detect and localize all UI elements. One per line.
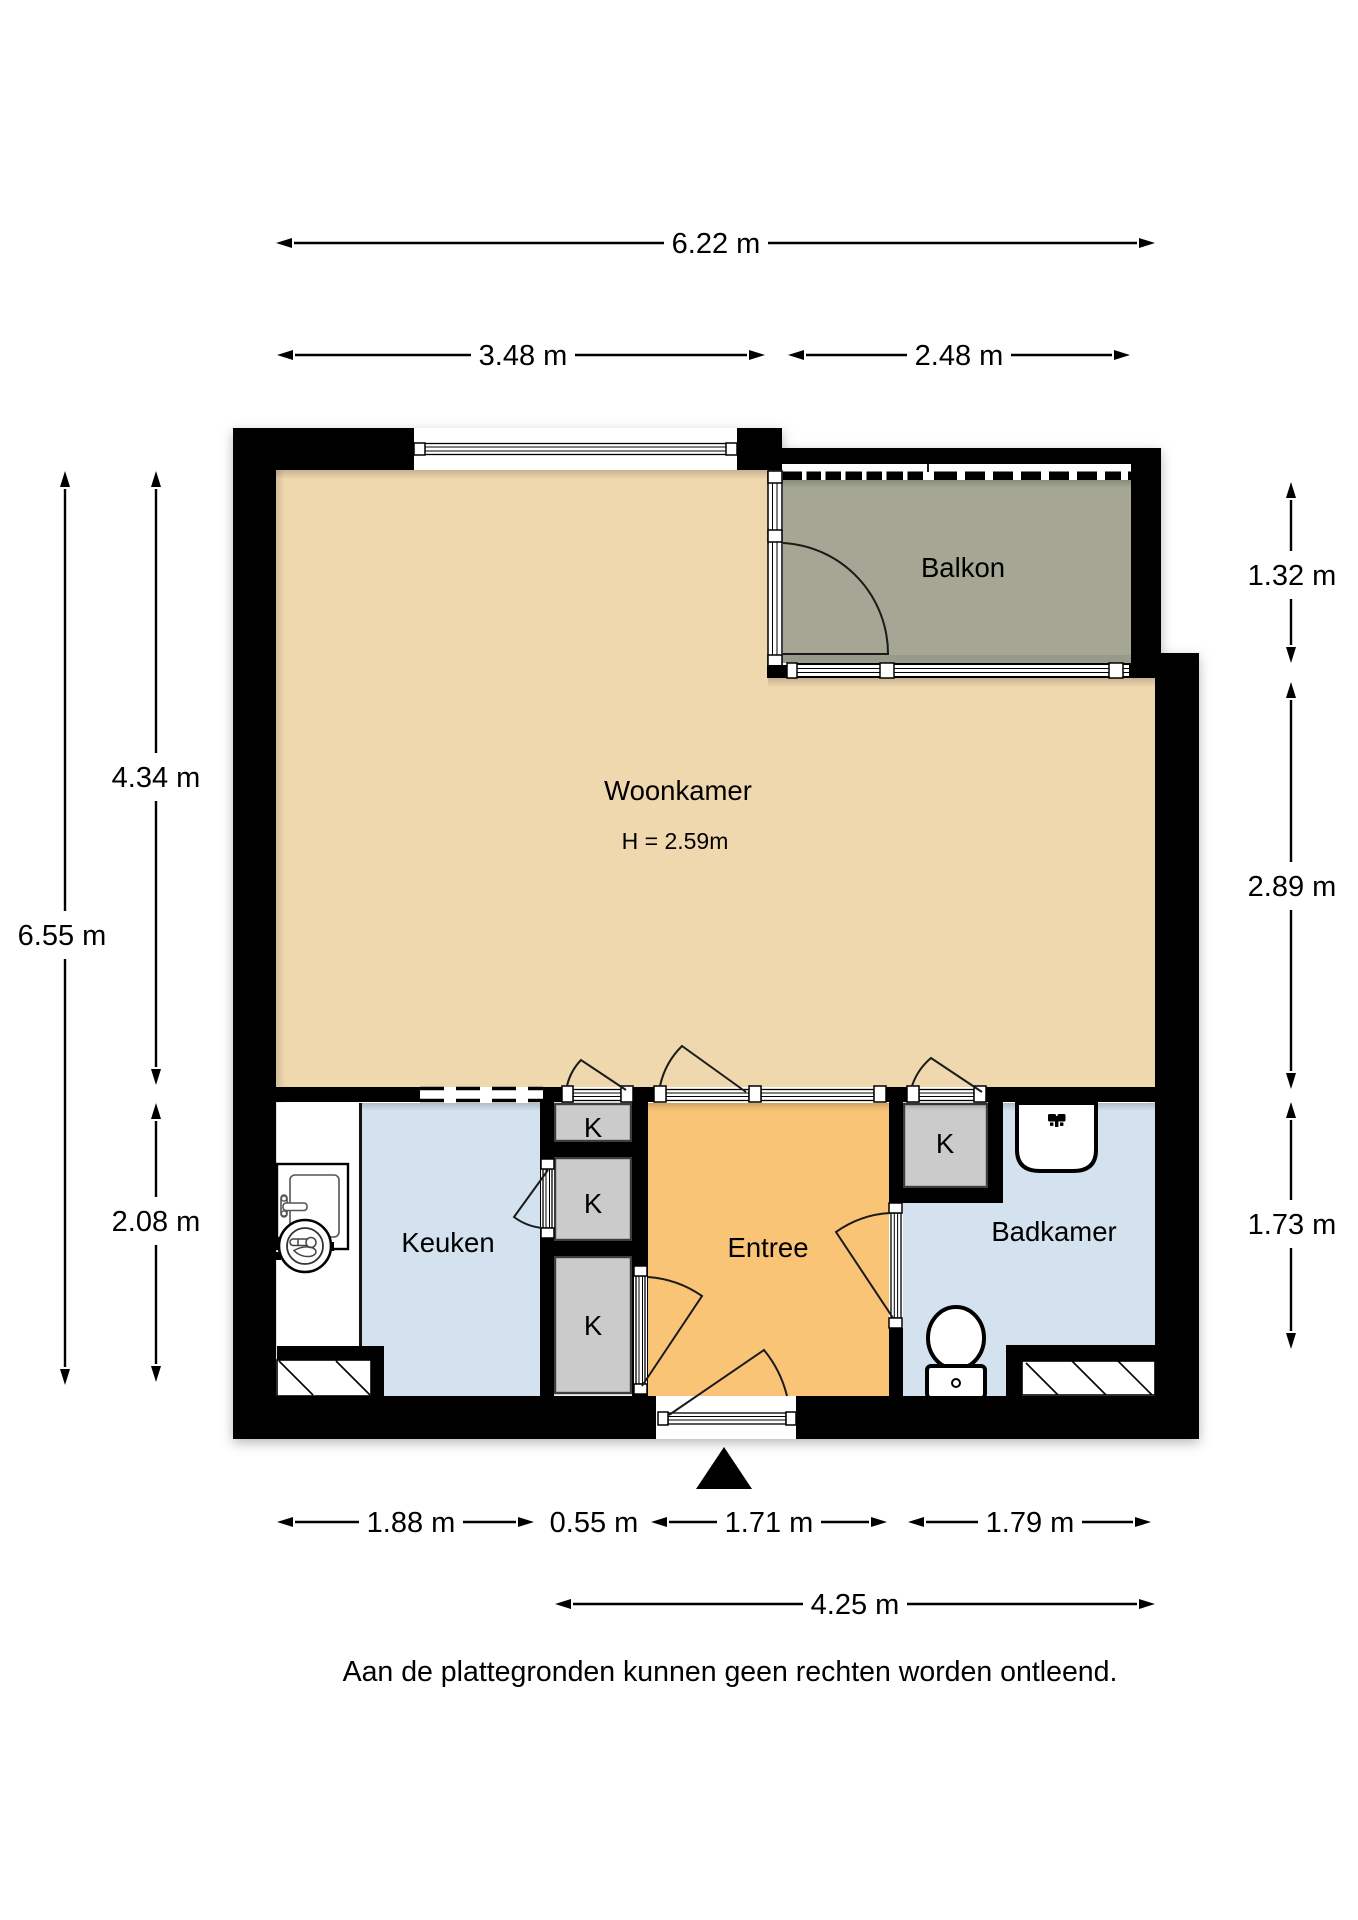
svg-text:4.25 m: 4.25 m xyxy=(811,1589,900,1621)
svg-text:6.55 m: 6.55 m xyxy=(18,920,107,952)
svg-text:H = 2.59m: H = 2.59m xyxy=(622,828,729,854)
svg-text:Aan de plattegronden kunnen ge: Aan de plattegronden kunnen geen rechten… xyxy=(343,1656,1118,1688)
svg-text:1.71 m: 1.71 m xyxy=(725,1507,814,1539)
svg-text:2.48 m: 2.48 m xyxy=(915,340,1004,372)
svg-text:1.79 m: 1.79 m xyxy=(986,1507,1075,1539)
svg-text:K: K xyxy=(936,1128,955,1159)
svg-text:2.89 m: 2.89 m xyxy=(1248,871,1337,903)
svg-text:Balkon: Balkon xyxy=(921,552,1005,583)
svg-text:2.08 m: 2.08 m xyxy=(112,1206,201,1238)
svg-text:K: K xyxy=(584,1310,603,1341)
svg-text:1.73 m: 1.73 m xyxy=(1248,1209,1337,1241)
svg-text:1.88 m: 1.88 m xyxy=(367,1507,456,1539)
svg-text:Entree: Entree xyxy=(727,1232,808,1263)
svg-text:Badkamer: Badkamer xyxy=(991,1216,1116,1247)
svg-text:6.22 m: 6.22 m xyxy=(672,228,761,260)
svg-text:K: K xyxy=(584,1188,603,1219)
svg-text:4.34 m: 4.34 m xyxy=(112,762,201,794)
svg-text:Keuken: Keuken xyxy=(401,1227,494,1258)
svg-text:3.48 m: 3.48 m xyxy=(479,340,568,372)
svg-text:Woonkamer: Woonkamer xyxy=(604,775,752,806)
svg-text:1.32 m: 1.32 m xyxy=(1248,560,1337,592)
svg-text:0.55 m: 0.55 m xyxy=(550,1507,639,1539)
svg-text:K: K xyxy=(584,1112,603,1143)
